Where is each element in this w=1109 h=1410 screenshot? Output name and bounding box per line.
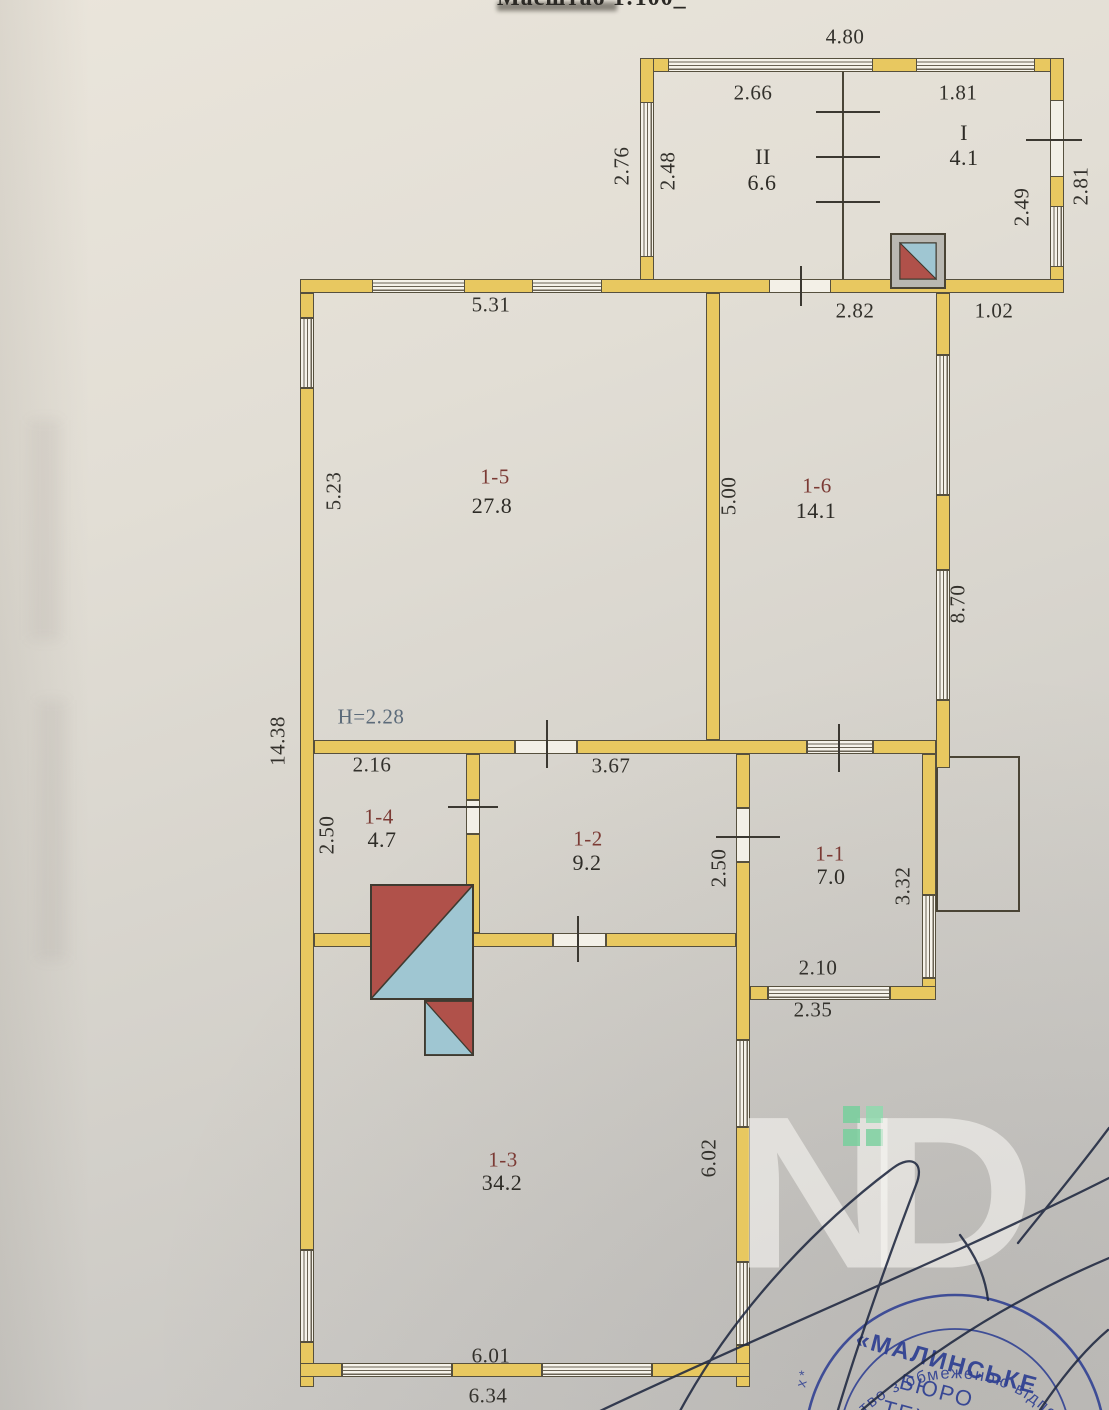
- window: [640, 102, 654, 258]
- door-opening: [807, 740, 873, 754]
- dimension-label: 5.31: [472, 293, 511, 318]
- dimension-tick: [800, 266, 802, 306]
- dimension-label: 6.34: [469, 1384, 508, 1409]
- wall-segment: [890, 986, 936, 1000]
- wall-segment: [936, 293, 950, 355]
- dimension-label: 5.00: [717, 477, 742, 516]
- wall-segment: [736, 862, 750, 1040]
- wall-segment: [652, 1363, 750, 1377]
- dimension-label: 5.23: [322, 472, 347, 511]
- wall-segment: [466, 754, 480, 800]
- dimension-label: 2.50: [315, 816, 340, 855]
- wall-segment: [1050, 176, 1064, 208]
- dimension-label: 4.80: [826, 25, 865, 50]
- wall-segment: [736, 754, 750, 808]
- wall-segment: [606, 933, 736, 947]
- wall-segment: [750, 986, 768, 1000]
- wall-segment: [300, 279, 374, 293]
- dimension-tick: [838, 724, 840, 772]
- wall-segment: [464, 279, 534, 293]
- dimension-label: 2.50: [707, 849, 732, 888]
- wall-segment: [314, 740, 515, 754]
- room-area: 14.1: [796, 498, 837, 524]
- dimension-label: 2.35: [794, 998, 833, 1023]
- partition-line: [842, 72, 844, 280]
- floor-plan-photo: Масштаб 1:100_: [0, 0, 1109, 1410]
- wall-segment: [936, 700, 950, 768]
- dimension-tick: [816, 201, 880, 203]
- wall-segment: [922, 754, 936, 895]
- window: [1050, 206, 1064, 268]
- stove-icon: [890, 233, 946, 289]
- room-number: 1-2: [573, 827, 603, 852]
- wall-segment: [736, 1127, 750, 1262]
- dimension-label: 2.49: [1010, 188, 1035, 227]
- dimension-tick: [577, 916, 579, 962]
- dimension-label: 2.82: [836, 299, 875, 324]
- dimension-label: 2.81: [1069, 167, 1094, 206]
- window: [542, 1363, 652, 1377]
- room-area: 9.2: [573, 850, 602, 876]
- dimension-label: 8.70: [946, 585, 971, 624]
- dimension-label: 6.02: [697, 1139, 722, 1178]
- dimension-label: 2.66: [734, 81, 773, 106]
- dimension-tick: [1026, 139, 1082, 141]
- window: [668, 58, 874, 72]
- room-area: 6.6: [748, 170, 777, 196]
- room-area: 4.7: [368, 827, 397, 853]
- height-note: H=2.28: [338, 705, 405, 730]
- dimension-tick: [448, 806, 498, 808]
- dimension-tick: [816, 156, 880, 158]
- window: [372, 279, 466, 293]
- dimension-label: 2.48: [656, 152, 681, 191]
- window: [342, 1363, 452, 1377]
- dimension-label: 6.01: [472, 1344, 511, 1369]
- wall-segment: [830, 279, 1064, 293]
- room-area: 7.0: [817, 864, 846, 890]
- window: [922, 895, 936, 978]
- dimension-tick: [546, 720, 548, 768]
- room-area: 34.2: [482, 1170, 523, 1196]
- room-number: 1-1: [815, 842, 845, 867]
- dimension-label: 2.76: [610, 147, 635, 186]
- dimension-tick: [716, 836, 780, 838]
- room-number: I: [960, 120, 968, 146]
- room-area: 27.8: [472, 493, 513, 519]
- room-number: 1-3: [488, 1148, 518, 1173]
- door-opening: [553, 933, 606, 947]
- dimension-label: 3.67: [592, 754, 631, 779]
- wall-segment: [706, 293, 720, 740]
- wall-segment: [300, 388, 314, 1250]
- wall-segment: [872, 58, 918, 72]
- window: [300, 318, 314, 388]
- wall-segment: [936, 495, 950, 570]
- room-number: 1-6: [802, 474, 832, 499]
- dimension-label: 14.38: [266, 716, 291, 766]
- door-opening: [736, 808, 750, 862]
- dimension-label: 1.02: [975, 299, 1014, 324]
- wall-segment: [601, 279, 771, 293]
- dimension-label: 3.32: [891, 867, 916, 906]
- wall-segment: [1050, 58, 1064, 102]
- wall-segment: [300, 1363, 342, 1377]
- room-number: 1-5: [480, 465, 510, 490]
- wall-segment: [300, 293, 314, 318]
- window: [736, 1040, 750, 1127]
- window: [532, 279, 603, 293]
- wall-segment: [577, 740, 807, 754]
- bleed-through-smudge: [30, 420, 60, 640]
- dimension-label: 2.16: [353, 753, 392, 778]
- wall-segment: [873, 740, 936, 754]
- wall-segment: [640, 58, 654, 104]
- bleed-through-smudge: [38, 700, 66, 960]
- stove-flue-icon: [424, 1000, 474, 1056]
- sheet-title: Масштаб 1:100_: [497, 0, 687, 12]
- window: [300, 1250, 314, 1342]
- room-number: 1-4: [364, 805, 394, 830]
- porch-outline: [936, 756, 1020, 912]
- window: [936, 355, 950, 495]
- dimension-label: 2.10: [799, 956, 838, 981]
- dimension-tick: [816, 111, 880, 113]
- room-area: 4.1: [950, 145, 979, 171]
- stove-icon: [370, 884, 474, 1000]
- window: [916, 58, 1036, 72]
- window: [736, 1262, 750, 1345]
- dimension-label: 1.81: [939, 81, 978, 106]
- room-number: II: [755, 144, 771, 170]
